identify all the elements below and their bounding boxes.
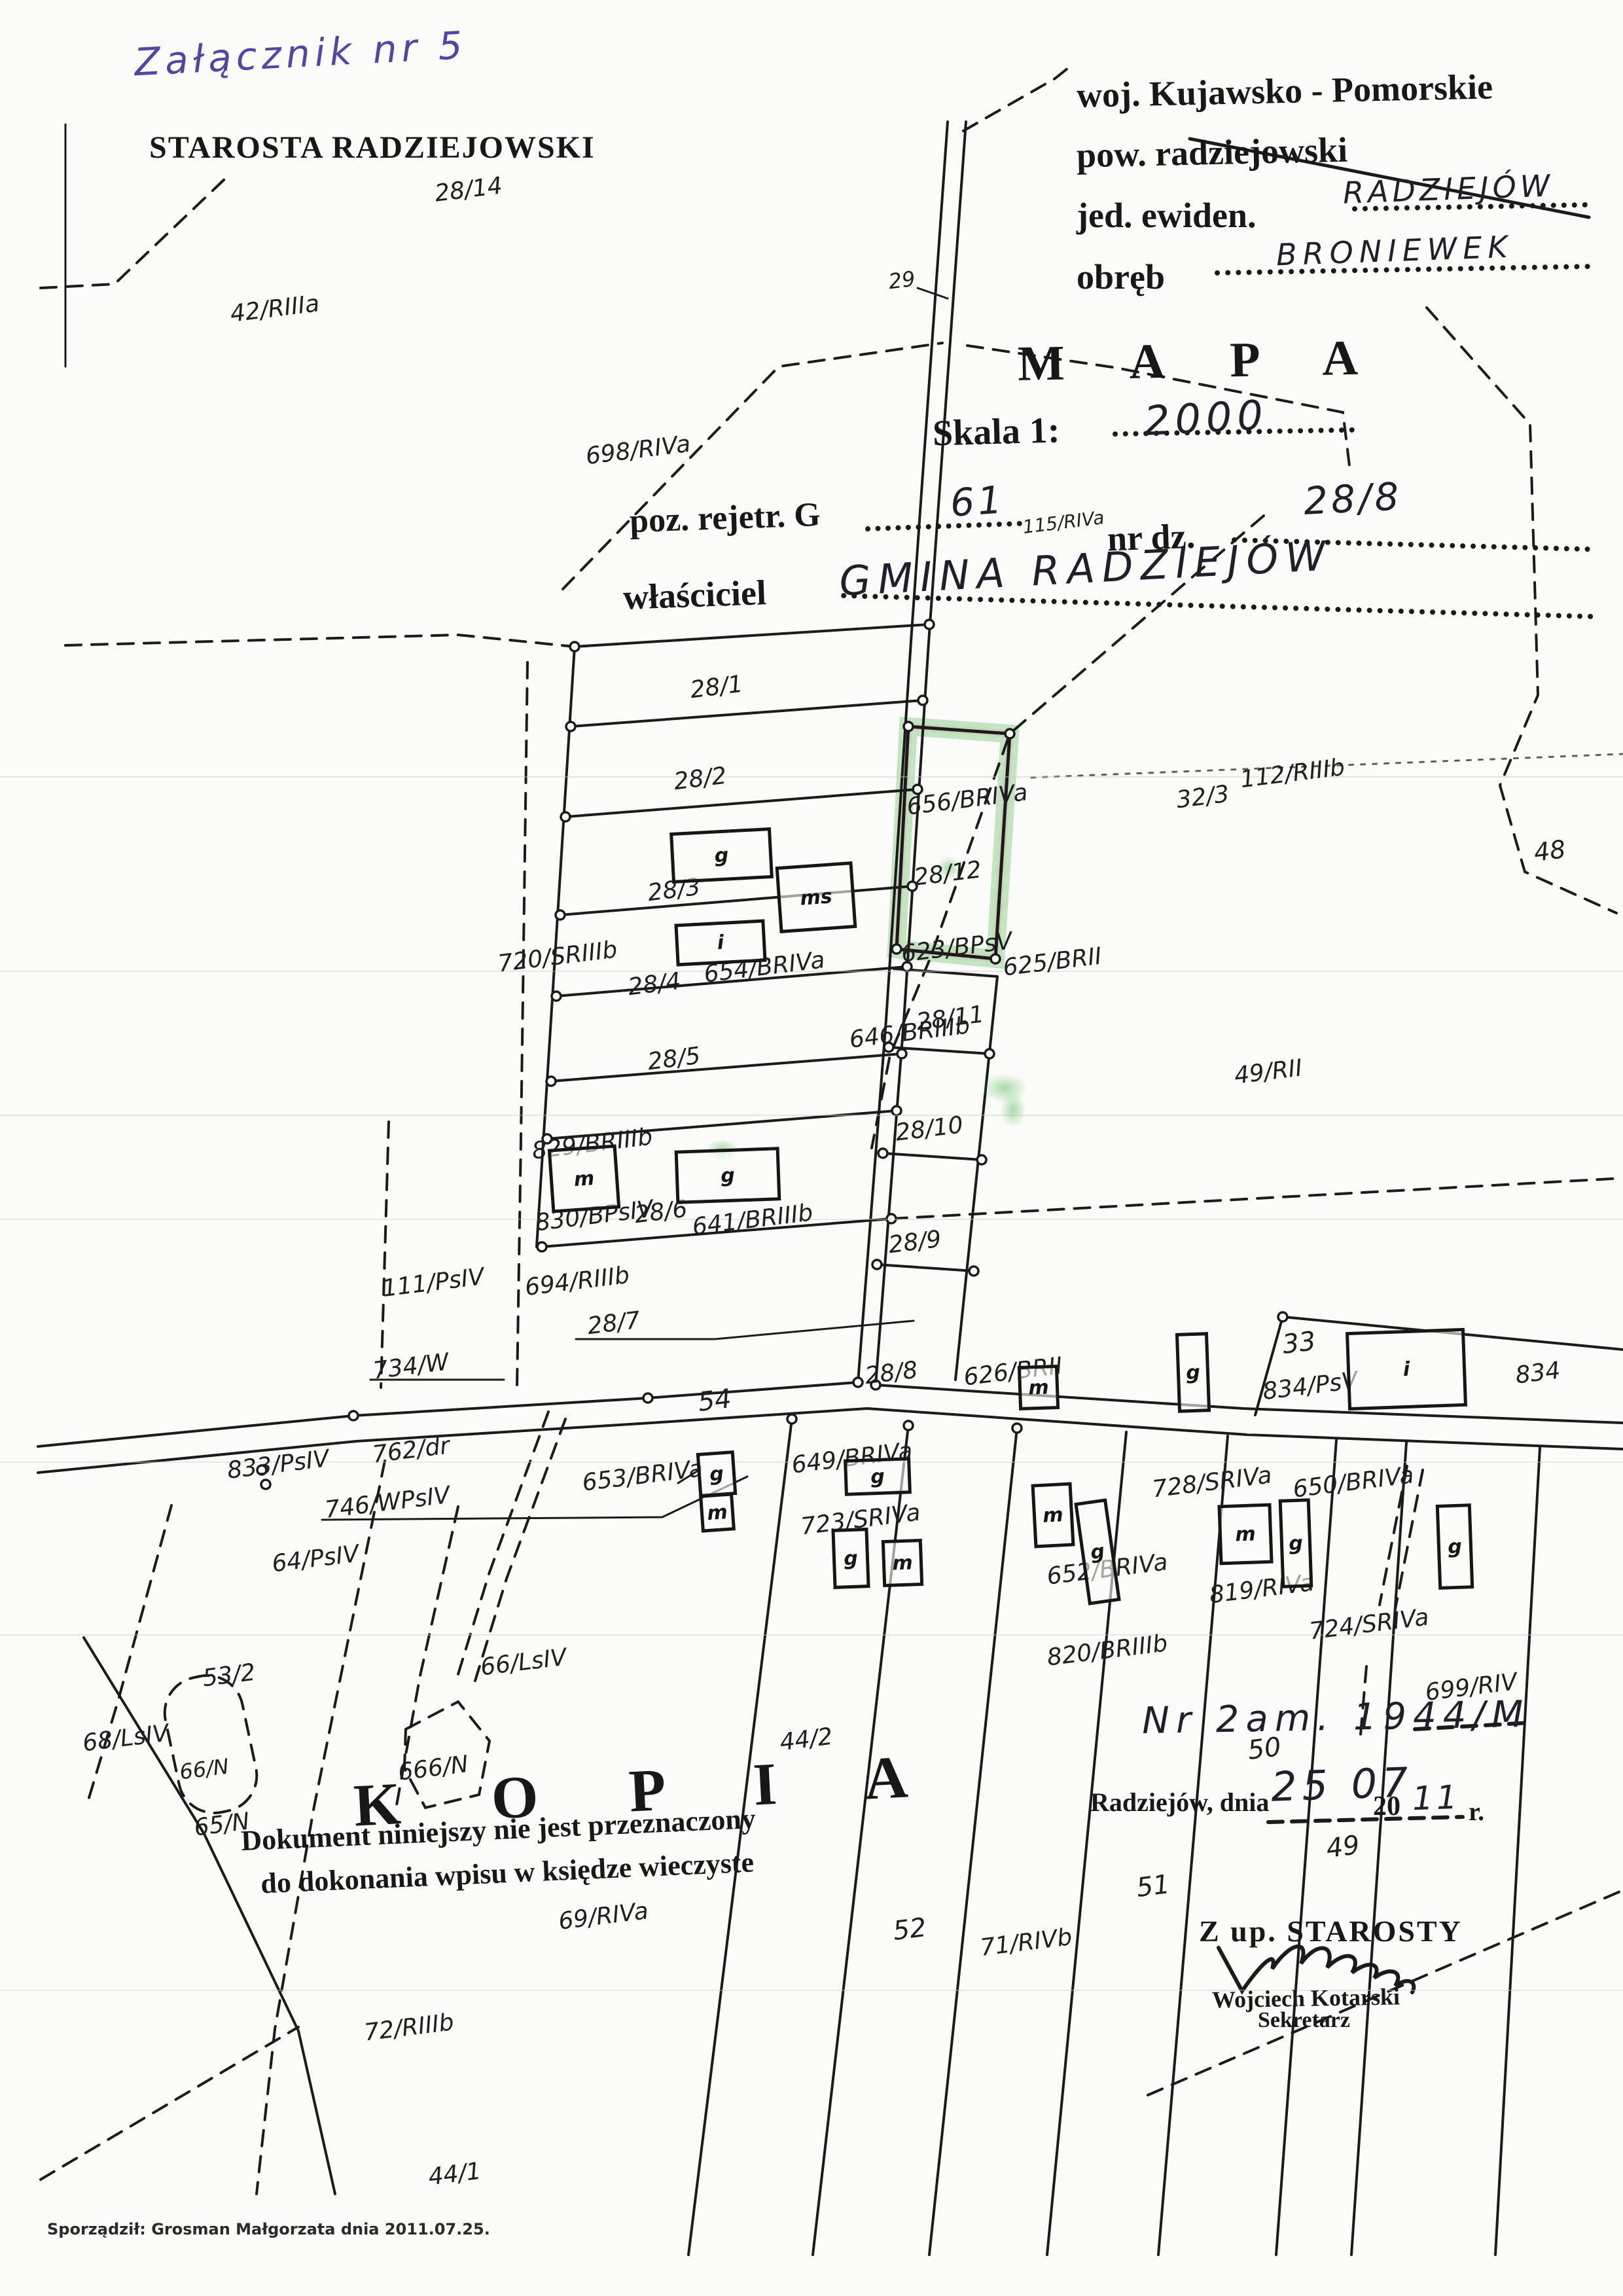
building-outline: g bbox=[1279, 1498, 1313, 1588]
highlight-parcel-outline bbox=[897, 726, 1010, 959]
parcel-label: 48 bbox=[1532, 834, 1567, 867]
building-outline: g bbox=[675, 1147, 781, 1204]
header-jed-label: jed. ewiden. bbox=[1077, 195, 1256, 236]
building-outline: g bbox=[1436, 1503, 1474, 1590]
building-use-letter: g bbox=[721, 1164, 736, 1187]
building-outline: m bbox=[699, 1492, 736, 1532]
building-outline: g bbox=[844, 1457, 912, 1496]
date-year-handwritten: 11 bbox=[1412, 1778, 1461, 1818]
parcel-label: 834 bbox=[1514, 1357, 1561, 1389]
signature-title: Sekretarz bbox=[1258, 2008, 1350, 2033]
office-stamp: STAROSTA RADZIEJOWSKI bbox=[149, 130, 596, 166]
building-use-letter: g bbox=[870, 1465, 885, 1488]
scale-value-handwritten: 2000 bbox=[1143, 391, 1269, 445]
plot-no-value-handwritten: 28/8 bbox=[1302, 474, 1403, 524]
registry-value-handwritten: 61 bbox=[949, 477, 1007, 526]
highlighter-smudge bbox=[1000, 1092, 1026, 1128]
building-outline: m bbox=[1031, 1482, 1075, 1548]
parcel-label: 52 bbox=[891, 1912, 928, 1946]
building-use-letter: i bbox=[717, 931, 724, 954]
date-suffix: r. bbox=[1469, 1796, 1484, 1827]
building-outline: m bbox=[1217, 1503, 1273, 1566]
header-pow-line: pow. radziejowski bbox=[1076, 130, 1347, 176]
building-use-letter: m bbox=[706, 1500, 728, 1524]
signature-upline: Z up. STAROSTY bbox=[1199, 1914, 1463, 1948]
date-label: Radziejów, dnia bbox=[1090, 1787, 1269, 1818]
building-use-letter: m bbox=[892, 1551, 913, 1575]
building-use-letter: g bbox=[714, 844, 729, 867]
jed-value-handwritten: RADZIEJÓW bbox=[1342, 168, 1554, 210]
building-outline: i bbox=[1346, 1328, 1467, 1410]
building-use-letter: i bbox=[1402, 1357, 1410, 1380]
parcel-label: 54 bbox=[696, 1384, 733, 1418]
building-use-letter: g bbox=[1186, 1361, 1201, 1384]
building-use-letter: g bbox=[709, 1462, 724, 1486]
scale-label: Skala 1: bbox=[932, 409, 1060, 454]
building-use-letter: m bbox=[573, 1166, 596, 1191]
building-use-letter: ms bbox=[799, 885, 832, 910]
scanned-cadastral-map-page: 28/1442/RIIIa29698/RIVa115/RIVa28/128/26… bbox=[0, 0, 1623, 2296]
building-use-letter: m bbox=[1235, 1522, 1256, 1546]
leader-lines bbox=[65, 124, 948, 1520]
building-outline: m bbox=[882, 1539, 923, 1587]
building-outline: g bbox=[669, 827, 774, 884]
building-outline: g bbox=[831, 1528, 870, 1589]
building-outline: m bbox=[1018, 1365, 1060, 1410]
building-outline: m bbox=[548, 1144, 621, 1213]
footer-prepared-by: Sporządził: Grosman Małgorzata dnia 2011… bbox=[47, 2220, 490, 2238]
case-note-handwritten: Nr 2am. 1944/M bbox=[1141, 1693, 1530, 1742]
building-use-letter: g bbox=[1289, 1532, 1304, 1555]
building-outline: i bbox=[674, 919, 766, 966]
parcel-label: 33 bbox=[1281, 1326, 1317, 1360]
parcels-right-column bbox=[877, 969, 1623, 1415]
building-use-letter: g bbox=[1448, 1535, 1463, 1558]
scan-streak bbox=[0, 776, 1623, 778]
header-obreb-label: obręb bbox=[1077, 257, 1165, 297]
owner-label: właściciel bbox=[622, 572, 767, 618]
map-title: M A P A bbox=[1017, 329, 1386, 393]
building-outline: ms bbox=[776, 861, 857, 933]
registry-label: poz. rejetr. G bbox=[629, 495, 821, 541]
scan-streak bbox=[0, 1115, 1623, 1116]
parcel-label: 29 bbox=[887, 266, 916, 295]
building-outline: g bbox=[1175, 1332, 1211, 1413]
date-day-month-handwritten: 25 07 bbox=[1270, 1758, 1414, 1811]
building-outline: g bbox=[696, 1450, 738, 1498]
parcel-label: 51 bbox=[1135, 1869, 1171, 1903]
parcel-label: 49 bbox=[1325, 1830, 1361, 1864]
building-use-letter: m bbox=[1042, 1503, 1063, 1528]
building-use-letter: g bbox=[1089, 1539, 1106, 1564]
building-use-letter: m bbox=[1028, 1376, 1049, 1399]
building-use-letter: g bbox=[844, 1547, 859, 1570]
